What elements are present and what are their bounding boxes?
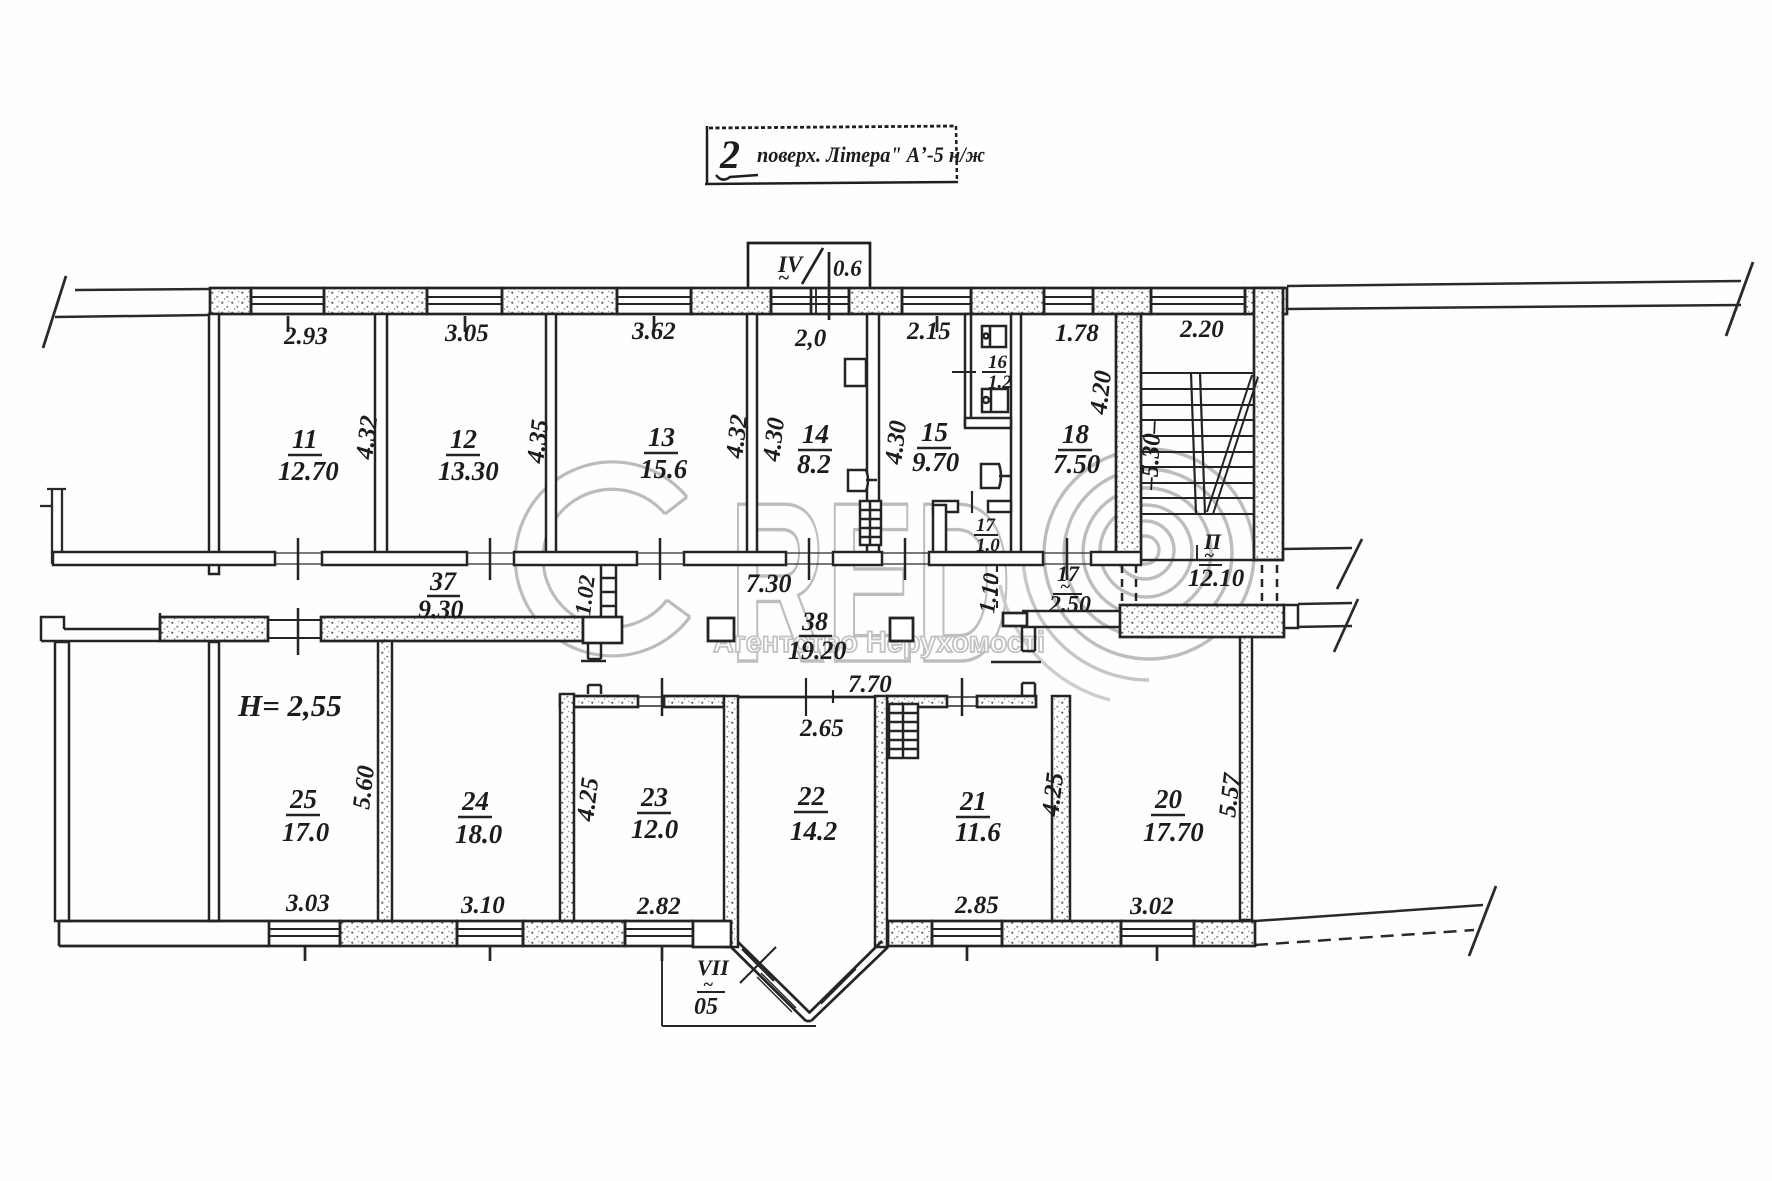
- svg-text:1.10: 1.10: [974, 571, 1004, 614]
- svg-text:12.70: 12.70: [278, 456, 339, 486]
- svg-text:1.02: 1.02: [570, 574, 600, 617]
- svg-text:2.85: 2.85: [954, 892, 999, 919]
- svg-text:поверх. Літера" Аʼ-5 н/ж: поверх. Літера" Аʼ-5 н/ж: [757, 142, 985, 167]
- svg-text:5.60: 5.60: [348, 764, 380, 811]
- svg-text:4.25: 4.25: [1037, 771, 1069, 819]
- svg-text:4.25: 4.25: [572, 776, 604, 824]
- svg-text:13.30: 13.30: [438, 456, 499, 486]
- svg-text:2.20: 2.20: [1179, 316, 1224, 343]
- svg-text:1.0: 1.0: [976, 535, 1000, 556]
- svg-text:2,0: 2,0: [794, 325, 827, 352]
- svg-text:38: 38: [801, 607, 828, 636]
- svg-text:15.6: 15.6: [640, 454, 688, 484]
- svg-text:7.30: 7.30: [746, 569, 792, 598]
- svg-text:15: 15: [921, 417, 948, 447]
- svg-text:17.70: 17.70: [1143, 817, 1204, 847]
- svg-text:25: 25: [289, 784, 317, 814]
- svg-text:8.2: 8.2: [797, 449, 831, 479]
- svg-text:21: 21: [959, 786, 987, 816]
- svg-text:12.10: 12.10: [1188, 565, 1245, 592]
- svg-text:14: 14: [802, 419, 829, 449]
- svg-text:17.0: 17.0: [282, 817, 330, 847]
- svg-text:24: 24: [461, 786, 489, 816]
- svg-text:4.32: 4.32: [721, 413, 753, 461]
- svg-text:23: 23: [640, 782, 668, 812]
- svg-text:2: 2: [719, 132, 740, 177]
- svg-text:Агентство Нерухомості: Агентство Нерухомості: [713, 626, 1045, 659]
- svg-text:9.30: 9.30: [418, 595, 464, 624]
- svg-text:1.78: 1.78: [1055, 320, 1099, 347]
- svg-text:5.57: 5.57: [1214, 771, 1246, 819]
- svg-text:20: 20: [1154, 784, 1183, 814]
- svg-text:19.20: 19.20: [788, 636, 847, 665]
- svg-text:2.65: 2.65: [799, 715, 844, 742]
- svg-text:2.93: 2.93: [283, 323, 328, 350]
- svg-text:–5.30–: –5.30–: [1136, 420, 1167, 492]
- svg-text:2.82: 2.82: [636, 893, 681, 920]
- svg-text:4.35: 4.35: [522, 418, 554, 466]
- svg-text:4.32: 4.32: [351, 414, 383, 462]
- svg-text:~: ~: [1204, 545, 1214, 565]
- svg-text:16: 16: [988, 352, 1008, 373]
- svg-text:9.70: 9.70: [912, 447, 960, 477]
- svg-text:11: 11: [292, 424, 318, 454]
- svg-text:4.20: 4.20: [1085, 369, 1117, 417]
- svg-text:13: 13: [648, 422, 675, 452]
- svg-text:11.6: 11.6: [955, 817, 1001, 847]
- svg-text:12: 12: [450, 424, 477, 454]
- svg-text:1.2: 1.2: [988, 372, 1012, 393]
- svg-text:H= 2,55: H= 2,55: [237, 688, 342, 723]
- svg-text:4.30: 4.30: [758, 416, 790, 464]
- svg-text:7.50: 7.50: [1053, 449, 1101, 479]
- svg-text:14.2: 14.2: [790, 816, 837, 846]
- svg-text:7.70: 7.70: [848, 671, 892, 698]
- svg-text:17: 17: [976, 515, 997, 536]
- svg-text:2.15: 2.15: [906, 318, 951, 345]
- svg-text:4.30: 4.30: [880, 419, 912, 467]
- svg-text:3.05: 3.05: [444, 320, 489, 347]
- svg-text:VII: VII: [697, 955, 730, 980]
- svg-text:37: 37: [429, 567, 457, 596]
- svg-text:2.50: 2.50: [1048, 592, 1091, 618]
- svg-text:3.10: 3.10: [460, 892, 505, 919]
- svg-text:3.02: 3.02: [1129, 893, 1174, 920]
- svg-text:3.03: 3.03: [285, 890, 330, 917]
- svg-text:22: 22: [797, 781, 825, 811]
- svg-text:~: ~: [778, 267, 789, 289]
- svg-text:12.0: 12.0: [631, 814, 679, 844]
- svg-text:18.0: 18.0: [455, 819, 503, 849]
- svg-text:0.6: 0.6: [833, 256, 862, 281]
- svg-text:05: 05: [694, 994, 718, 1020]
- svg-text:3.62: 3.62: [631, 318, 676, 345]
- svg-text:18: 18: [1062, 419, 1090, 449]
